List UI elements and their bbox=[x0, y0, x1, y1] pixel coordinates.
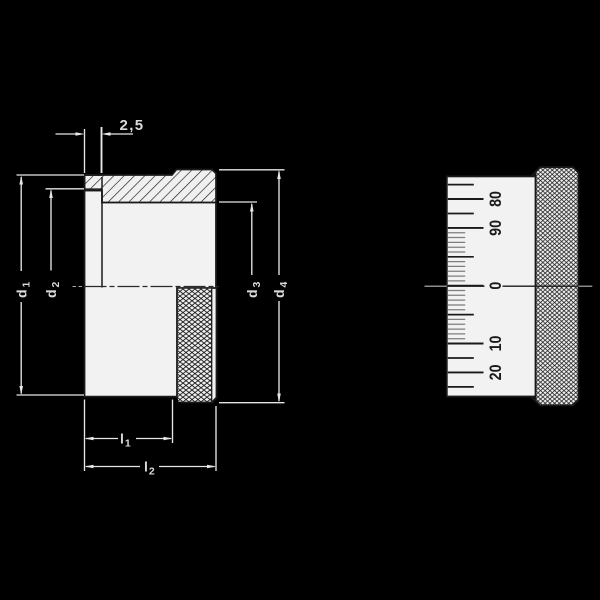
svg-text:0: 0 bbox=[487, 281, 505, 289]
svg-text:10: 10 bbox=[487, 335, 505, 351]
svg-text:90: 90 bbox=[487, 220, 505, 236]
svg-text:80: 80 bbox=[487, 191, 505, 207]
svg-text:20: 20 bbox=[487, 364, 505, 380]
svg-text:2,5: 2,5 bbox=[120, 117, 145, 134]
